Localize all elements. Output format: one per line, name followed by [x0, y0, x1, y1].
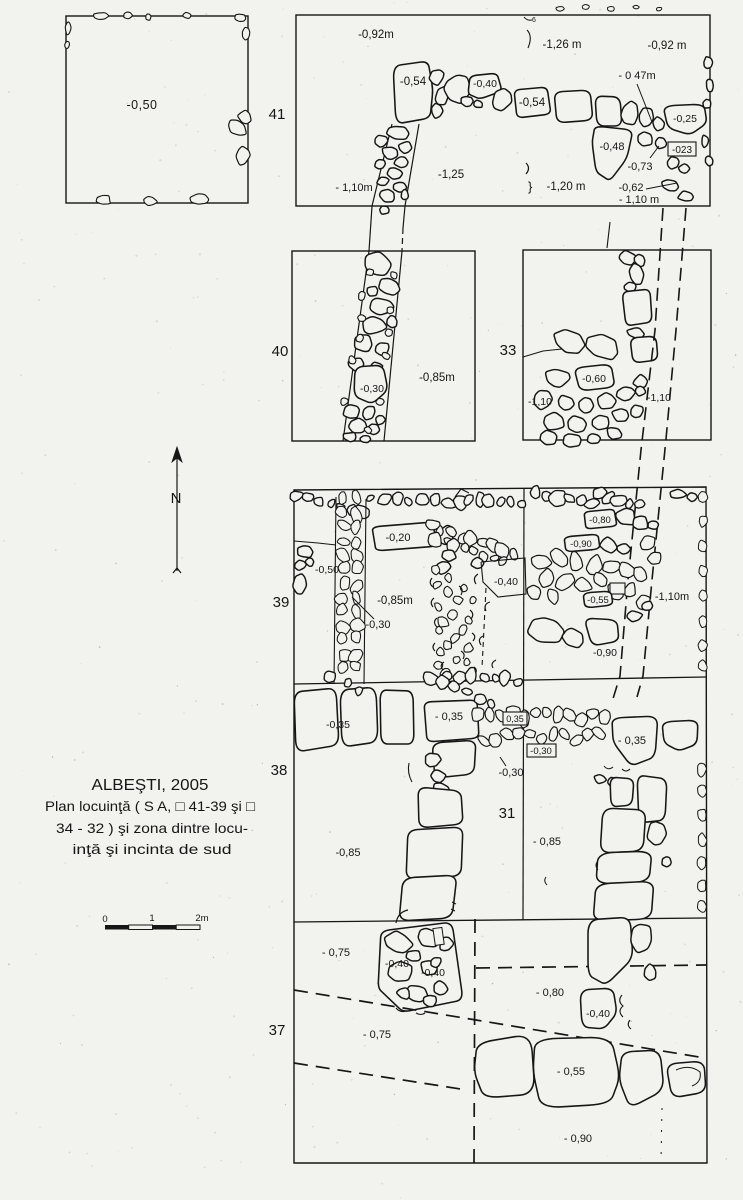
svg-text:-0,30: -0,30: [498, 767, 523, 779]
svg-text:-0,55: -0,55: [587, 595, 609, 606]
svg-text:}: }: [528, 179, 533, 194]
svg-text:-0,62: -0,62: [618, 182, 643, 194]
svg-text:-0,92m: -0,92m: [358, 29, 394, 41]
svg-text:-1,10: -1,10: [647, 392, 671, 404]
svg-text:-0,85m: -0,85m: [419, 372, 455, 384]
svg-text:- 0 47m: - 0 47m: [618, 70, 655, 82]
svg-text:-0,40: -0,40: [586, 1008, 610, 1020]
svg-text:-0,30: -0,30: [360, 383, 384, 395]
svg-text:38: 38: [271, 762, 288, 779]
svg-text:41: 41: [269, 106, 286, 123]
svg-text:-1,20 m: -1,20 m: [547, 181, 586, 193]
svg-text:-0,90: -0,90: [570, 539, 592, 550]
svg-text:-0,90: -0,90: [593, 647, 617, 659]
svg-text:37: 37: [269, 1022, 286, 1039]
svg-text:ALBEŞTI, 2005: ALBEŞTI, 2005: [92, 777, 209, 794]
svg-text:33: 33: [500, 342, 517, 359]
svg-text:31: 31: [499, 805, 516, 822]
svg-text:-0,73: -0,73: [627, 161, 652, 173]
svg-text:- 1,10 m: - 1,10 m: [619, 194, 659, 206]
svg-text:- 0,75: - 0,75: [322, 947, 350, 959]
svg-text:Plan locuinţă ( S A, □ 41-39 ş: Plan locuinţă ( S A, □ 41-39 şi □: [45, 798, 256, 814]
svg-text:- 0,75: - 0,75: [363, 1029, 391, 1041]
svg-text:-0,30: -0,30: [365, 619, 390, 631]
svg-text:-1,10: -1,10: [528, 396, 552, 408]
svg-text:-0,85: -0,85: [335, 847, 360, 859]
svg-text:- 0,80: - 0,80: [536, 987, 564, 999]
svg-text:-0,85m: -0,85m: [377, 595, 413, 607]
svg-text:- 0,35: - 0,35: [618, 735, 646, 747]
svg-text:-1,10m: -1,10m: [655, 591, 689, 603]
svg-text:2m: 2m: [195, 913, 208, 924]
svg-text:0,35: 0,35: [506, 714, 524, 724]
svg-text:-1,25: -1,25: [438, 169, 464, 181]
svg-text:-0,40: -0,40: [473, 78, 497, 90]
svg-text:-0,54: -0,54: [400, 76, 427, 88]
svg-text:-0,20: -0,20: [385, 532, 410, 544]
svg-text:-0,60: -0,60: [582, 373, 606, 385]
svg-text:- 0,85: - 0,85: [533, 836, 561, 848]
svg-text:34 - 32 ) şi zona dintre locu-: 34 - 32 ) şi zona dintre locu-: [56, 820, 248, 836]
svg-text:-0,40: -0,40: [385, 958, 409, 970]
svg-text:-0,48: -0,48: [599, 141, 624, 153]
svg-text:-0,35: -0,35: [326, 719, 350, 731]
svg-text:-0,30: -0,30: [530, 746, 552, 757]
svg-text:-0,80: -0,80: [589, 515, 611, 526]
svg-text:- 0,35: - 0,35: [435, 711, 463, 723]
svg-text:-023: -023: [672, 145, 692, 156]
svg-text:- 0,55: - 0,55: [557, 1066, 585, 1078]
svg-text:-0,50: -0,50: [315, 564, 339, 576]
svg-text:- 0,90: - 0,90: [564, 1133, 592, 1145]
svg-text:-0,92 m: -0,92 m: [648, 40, 687, 52]
svg-text:-0,50: -0,50: [127, 98, 158, 112]
svg-text:-0,40: -0,40: [494, 576, 518, 588]
svg-text:-0,25: -0,25: [673, 113, 697, 125]
svg-text:-1,26 m: -1,26 m: [543, 39, 582, 51]
svg-text:- 1,10m: - 1,10m: [335, 182, 372, 194]
svg-text:N: N: [171, 490, 182, 507]
svg-text:40: 40: [272, 343, 289, 360]
svg-text:-0,54: -0,54: [519, 97, 546, 109]
svg-text:-0,40: -0,40: [421, 967, 445, 979]
svg-text:39: 39: [273, 594, 290, 611]
svg-text:6: 6: [532, 17, 536, 24]
svg-text:0: 0: [102, 914, 107, 925]
svg-text:1: 1: [149, 913, 154, 924]
svg-text:inţă şi incinta de sud: inţă şi incinta de sud: [73, 841, 232, 857]
